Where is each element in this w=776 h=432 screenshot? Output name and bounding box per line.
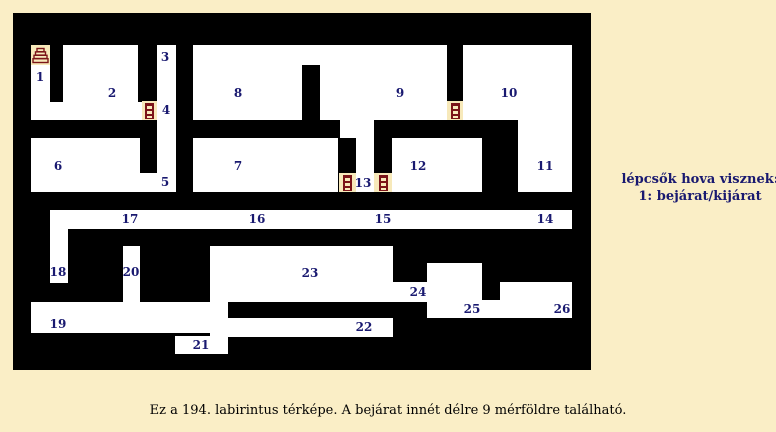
room-number-label: 6 (54, 160, 62, 172)
room-number-label: 16 (249, 213, 266, 225)
room-area (31, 138, 140, 192)
ladder-glyph (379, 175, 388, 191)
room-number-label: 22 (356, 321, 373, 333)
room-area (392, 138, 482, 192)
room-number-label: 12 (410, 160, 427, 172)
ladder-glyph (343, 175, 352, 191)
room-area (31, 102, 142, 120)
room-number-label: 2 (108, 87, 116, 99)
room-area (63, 45, 138, 102)
room-number-label: 21 (193, 339, 210, 351)
ladder-glyph (145, 103, 154, 119)
room-number-label: 15 (375, 213, 392, 225)
room-area (340, 120, 374, 138)
room-number-label: 26 (554, 303, 571, 315)
legend-entry-1: 1: bejárat/kijárat (614, 188, 776, 205)
room-area (302, 45, 320, 65)
room-number-label: 7 (234, 160, 242, 172)
map-caption: Ez a 194. labirintus térképe. A bejárat … (0, 403, 776, 419)
room-number-label: 24 (410, 286, 427, 298)
room-number-label: 4 (162, 104, 170, 116)
room-area (157, 45, 176, 192)
room-area (320, 45, 447, 120)
room-number-label: 11 (537, 160, 554, 172)
stairs-icon (31, 45, 50, 65)
room-number-label: 13 (355, 177, 372, 189)
room-area (463, 45, 572, 120)
room-area (140, 173, 157, 192)
room-number-label: 17 (122, 213, 139, 225)
ladder-icon (374, 173, 392, 192)
room-number-label: 9 (396, 87, 404, 99)
room-area (193, 138, 338, 192)
room-area (518, 120, 572, 192)
room-area (193, 45, 302, 120)
labyrinth-map-page: lépcsők hova visznek: 1: bejárat/kijárat… (0, 0, 776, 432)
room-number-label: 5 (161, 176, 169, 188)
stairs-glyph (32, 47, 49, 64)
room-number-label: 23 (302, 267, 319, 279)
room-number-label: 3 (161, 51, 169, 63)
ladder-icon (447, 101, 463, 120)
room-number-label: 25 (464, 303, 481, 315)
room-number-label: 18 (50, 266, 67, 278)
ladder-icon (142, 101, 157, 120)
room-number-label: 8 (234, 87, 242, 99)
ladder-glyph (451, 103, 460, 119)
stairs-legend: lépcsők hova visznek: 1: bejárat/kijárat (614, 171, 776, 205)
room-number-label: 10 (501, 87, 518, 99)
room-number-label: 14 (537, 213, 554, 225)
legend-title: lépcsők hova visznek: (614, 171, 776, 188)
room-number-label: 19 (50, 318, 67, 330)
room-number-label: 1 (36, 71, 44, 83)
ladder-icon (339, 173, 356, 192)
room-number-label: 20 (123, 266, 140, 278)
